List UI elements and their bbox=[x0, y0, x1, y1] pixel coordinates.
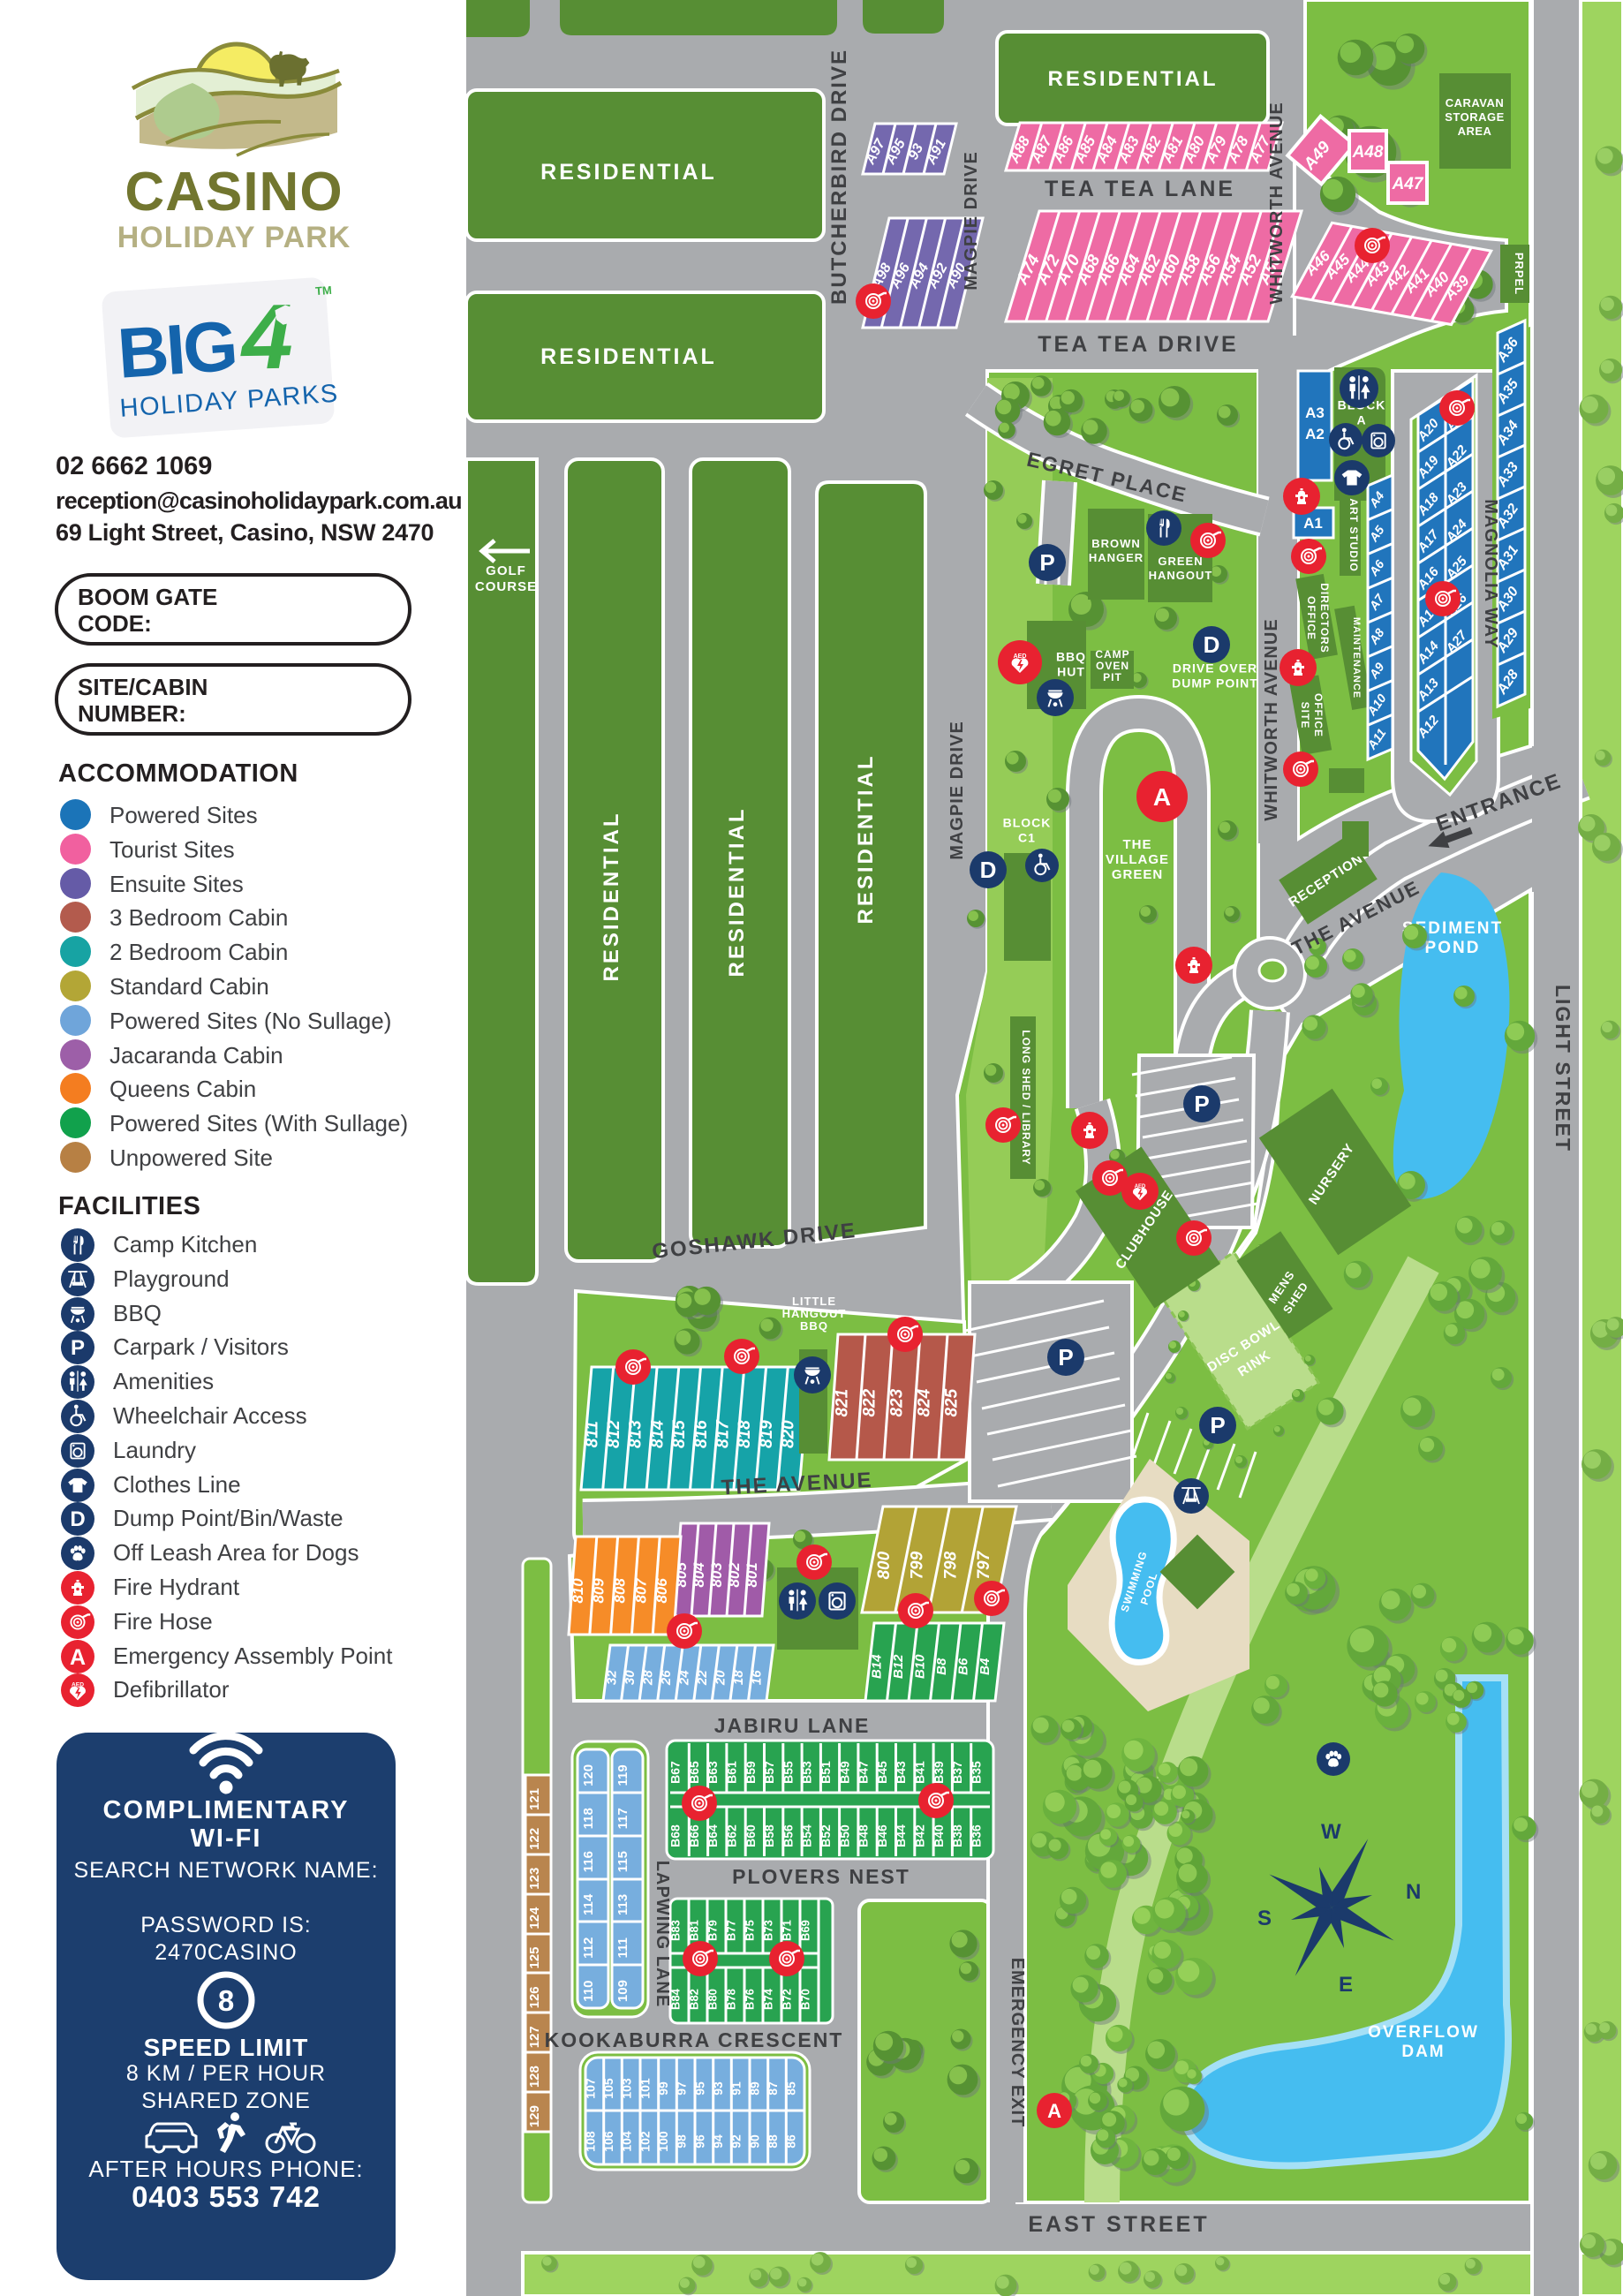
svg-text:116: 116 bbox=[581, 1851, 596, 1872]
svg-text:B14: B14 bbox=[869, 1654, 884, 1679]
svg-text:B43: B43 bbox=[894, 1761, 908, 1784]
svg-text:B62: B62 bbox=[725, 1824, 739, 1847]
svg-text:92: 92 bbox=[729, 2134, 744, 2149]
svg-text:LIGHT STREET: LIGHT STREET bbox=[1551, 985, 1574, 1152]
svg-text:DAM: DAM bbox=[1401, 2043, 1445, 2061]
svg-text:108: 108 bbox=[583, 2131, 597, 2152]
svg-text:811: 811 bbox=[583, 1421, 601, 1447]
svg-text:106: 106 bbox=[601, 2131, 615, 2152]
svg-text:102: 102 bbox=[638, 2131, 652, 2152]
svg-text:0403 553 742: 0403 553 742 bbox=[132, 2180, 321, 2213]
svg-text:126: 126 bbox=[527, 1986, 542, 2008]
svg-text:118: 118 bbox=[581, 1808, 596, 1829]
svg-text:SHARED ZONE: SHARED ZONE bbox=[141, 2088, 311, 2113]
svg-text:DIRECTORS: DIRECTORS bbox=[1318, 583, 1331, 653]
svg-text:BBQ: BBQ bbox=[1056, 650, 1086, 664]
svg-text:115: 115 bbox=[615, 1851, 630, 1872]
svg-text:128: 128 bbox=[527, 2066, 542, 2088]
svg-text:OVEN: OVEN bbox=[1096, 660, 1129, 672]
svg-text:804: 804 bbox=[691, 1562, 707, 1588]
svg-text:B37: B37 bbox=[950, 1761, 964, 1784]
svg-text:RESIDENTIAL: RESIDENTIAL bbox=[725, 806, 749, 977]
svg-text:MAGNOLIA WAY: MAGNOLIA WAY bbox=[1481, 499, 1500, 648]
svg-text:B65: B65 bbox=[687, 1761, 701, 1784]
svg-text:B70: B70 bbox=[799, 1989, 812, 2010]
svg-text:110: 110 bbox=[581, 1980, 596, 2001]
svg-text:104: 104 bbox=[620, 2131, 634, 2152]
svg-text:B40: B40 bbox=[932, 1824, 946, 1847]
svg-text:B68: B68 bbox=[668, 1824, 683, 1847]
svg-text:825: 825 bbox=[943, 1388, 962, 1416]
svg-text:88: 88 bbox=[766, 2134, 780, 2149]
svg-text:123: 123 bbox=[527, 1868, 542, 1890]
svg-text:EAST STREET: EAST STREET bbox=[1028, 2212, 1209, 2237]
svg-text:97: 97 bbox=[675, 2081, 689, 2096]
svg-text:B61: B61 bbox=[725, 1761, 739, 1784]
svg-text:B55: B55 bbox=[781, 1761, 795, 1784]
svg-text:107: 107 bbox=[583, 2078, 597, 2099]
svg-text:COMPLIMENTARY: COMPLIMENTARY bbox=[103, 1796, 350, 1824]
svg-text:WI-FI: WI-FI bbox=[191, 1824, 262, 1853]
svg-text:B8: B8 bbox=[934, 1658, 949, 1675]
svg-text:RESIDENTIAL: RESIDENTIAL bbox=[600, 811, 623, 981]
svg-text:B57: B57 bbox=[762, 1761, 776, 1784]
svg-text:24: 24 bbox=[677, 1670, 692, 1686]
svg-text:OFFICE: OFFICE bbox=[1305, 596, 1317, 640]
svg-text:813: 813 bbox=[627, 1420, 645, 1448]
svg-text:822: 822 bbox=[861, 1388, 879, 1416]
svg-text:799: 799 bbox=[909, 1551, 927, 1579]
svg-text:LONG SHED / LIBRARY: LONG SHED / LIBRARY bbox=[1020, 1030, 1032, 1165]
svg-text:30: 30 bbox=[623, 1670, 638, 1685]
svg-text:JABIRU LANE: JABIRU LANE bbox=[714, 1714, 871, 1737]
svg-text:B56: B56 bbox=[781, 1824, 795, 1847]
svg-text:MAGPIE DRIVE: MAGPIE DRIVE bbox=[947, 721, 967, 860]
svg-text:B47: B47 bbox=[857, 1761, 871, 1784]
svg-text:AFTER HOURS PHONE:: AFTER HOURS PHONE: bbox=[88, 2156, 363, 2182]
svg-text:B81: B81 bbox=[688, 1920, 701, 1941]
svg-text:B64: B64 bbox=[706, 1824, 720, 1847]
svg-text:129: 129 bbox=[527, 2105, 542, 2127]
svg-text:818: 818 bbox=[736, 1420, 754, 1448]
svg-text:D: D bbox=[70, 1507, 85, 1531]
svg-text:89: 89 bbox=[747, 2081, 761, 2096]
svg-text:801: 801 bbox=[744, 1562, 760, 1587]
svg-text:PRPEL: PRPEL bbox=[1513, 253, 1526, 295]
svg-text:B54: B54 bbox=[800, 1824, 814, 1847]
svg-text:B50: B50 bbox=[837, 1824, 851, 1847]
svg-text:91: 91 bbox=[729, 2081, 744, 2096]
svg-text:RESIDENTIAL: RESIDENTIAL bbox=[540, 344, 717, 369]
svg-text:SITE: SITE bbox=[1299, 702, 1311, 729]
svg-text:121: 121 bbox=[527, 1788, 542, 1810]
svg-text:THE: THE bbox=[1123, 837, 1152, 852]
svg-text:B49: B49 bbox=[837, 1761, 851, 1784]
svg-text:A48: A48 bbox=[1352, 143, 1384, 162]
svg-text:B82: B82 bbox=[688, 1989, 701, 2010]
svg-text:824: 824 bbox=[916, 1388, 934, 1416]
svg-text:B76: B76 bbox=[744, 1989, 757, 2010]
svg-text:800: 800 bbox=[875, 1551, 894, 1579]
svg-text:RESIDENTIAL: RESIDENTIAL bbox=[1047, 67, 1218, 91]
svg-text:819: 819 bbox=[758, 1420, 776, 1448]
svg-text:W: W bbox=[1321, 1820, 1341, 1844]
svg-text:18: 18 bbox=[731, 1670, 746, 1685]
svg-text:RESIDENTIAL: RESIDENTIAL bbox=[540, 160, 717, 185]
svg-text:2470CASINO: 2470CASINO bbox=[155, 1940, 297, 1965]
svg-text:87: 87 bbox=[766, 2081, 780, 2096]
svg-text:127: 127 bbox=[527, 2026, 542, 2048]
svg-text:WHITWORTH AVENUE: WHITWORTH AVENUE bbox=[1262, 618, 1281, 820]
svg-text:105: 105 bbox=[601, 2078, 615, 2099]
svg-text:BIG: BIG bbox=[115, 306, 238, 393]
svg-text:HANGOUT: HANGOUT bbox=[1149, 569, 1213, 582]
svg-text:806: 806 bbox=[653, 1578, 670, 1604]
svg-text:B36: B36 bbox=[969, 1824, 983, 1847]
svg-text:821: 821 bbox=[834, 1389, 852, 1417]
svg-text:803: 803 bbox=[708, 1562, 725, 1588]
svg-text:LITTLE: LITTLE bbox=[792, 1295, 836, 1308]
svg-text:B41: B41 bbox=[912, 1761, 926, 1784]
svg-text:SEARCH NETWORK NAME:: SEARCH NETWORK NAME: bbox=[73, 1858, 378, 1883]
svg-text:820: 820 bbox=[780, 1420, 798, 1448]
svg-text:119: 119 bbox=[615, 1764, 630, 1786]
svg-text:B59: B59 bbox=[744, 1761, 758, 1784]
svg-text:A: A bbox=[1153, 783, 1171, 811]
svg-text:815: 815 bbox=[670, 1420, 689, 1448]
svg-text:PIT: PIT bbox=[1103, 671, 1122, 684]
svg-text:EMERGENCY EXIT: EMERGENCY EXIT bbox=[1008, 1958, 1027, 2128]
svg-text:808: 808 bbox=[612, 1578, 629, 1604]
svg-text:A3: A3 bbox=[1305, 404, 1325, 421]
svg-text:RESIDENTIAL: RESIDENTIAL bbox=[854, 753, 878, 924]
svg-text:96: 96 bbox=[692, 2134, 706, 2149]
svg-text:HANGER: HANGER bbox=[1089, 551, 1144, 564]
svg-text:B78: B78 bbox=[725, 1989, 738, 2010]
svg-text:B52: B52 bbox=[819, 1824, 833, 1847]
svg-text:HANGOUT: HANGOUT bbox=[782, 1307, 847, 1320]
svg-text:N: N bbox=[1406, 1880, 1421, 1904]
svg-text:B39: B39 bbox=[932, 1761, 946, 1784]
svg-text:109: 109 bbox=[615, 1980, 630, 2002]
svg-text:GREEN: GREEN bbox=[1158, 555, 1203, 568]
svg-text:B79: B79 bbox=[706, 1920, 720, 1941]
svg-text:A: A bbox=[1047, 2100, 1061, 2122]
svg-text:PLOVERS NEST: PLOVERS NEST bbox=[732, 1865, 910, 1888]
svg-text:B58: B58 bbox=[762, 1824, 776, 1847]
svg-text:B35: B35 bbox=[969, 1761, 983, 1784]
svg-text:125: 125 bbox=[527, 1946, 542, 1968]
svg-text:MAGPIE DRIVE: MAGPIE DRIVE bbox=[962, 151, 981, 291]
svg-text:20: 20 bbox=[713, 1670, 728, 1686]
svg-text:117: 117 bbox=[615, 1808, 630, 1829]
svg-text:810: 810 bbox=[570, 1578, 586, 1604]
svg-text:SPEED LIMIT: SPEED LIMIT bbox=[144, 2034, 309, 2061]
svg-text:B71: B71 bbox=[781, 1920, 794, 1941]
svg-text:B66: B66 bbox=[687, 1824, 701, 1847]
svg-text:B75: B75 bbox=[744, 1920, 757, 1941]
svg-text:COURSE: COURSE bbox=[475, 579, 537, 594]
svg-text:P: P bbox=[71, 1336, 85, 1360]
svg-text:WHITWORTH AVENUE: WHITWORTH AVENUE bbox=[1267, 102, 1287, 304]
svg-text:B12: B12 bbox=[891, 1654, 906, 1679]
svg-text:CARAVAN: CARAVAN bbox=[1446, 96, 1505, 110]
svg-text:B46: B46 bbox=[875, 1824, 889, 1847]
svg-text:94: 94 bbox=[711, 2134, 725, 2149]
svg-text:D: D bbox=[980, 857, 997, 883]
svg-text:E: E bbox=[1339, 1973, 1353, 1997]
svg-text:99: 99 bbox=[656, 2081, 670, 2096]
svg-text:A47: A47 bbox=[1392, 175, 1424, 193]
svg-text:814: 814 bbox=[648, 1420, 667, 1448]
svg-text:POND: POND bbox=[1425, 939, 1481, 957]
svg-text:P: P bbox=[1194, 1091, 1209, 1117]
svg-text:DUMP POINT: DUMP POINT bbox=[1172, 676, 1258, 691]
svg-text:823: 823 bbox=[888, 1388, 907, 1416]
svg-text:802: 802 bbox=[726, 1562, 743, 1588]
svg-text:28: 28 bbox=[640, 1670, 655, 1686]
svg-text:B4: B4 bbox=[978, 1658, 993, 1675]
svg-text:HUT: HUT bbox=[1057, 665, 1085, 679]
svg-text:B74: B74 bbox=[762, 1988, 775, 2010]
svg-text:812: 812 bbox=[605, 1420, 623, 1448]
svg-text:114: 114 bbox=[581, 1893, 596, 1915]
svg-text:98: 98 bbox=[675, 2134, 689, 2149]
svg-text:86: 86 bbox=[784, 2134, 798, 2149]
svg-text:4: 4 bbox=[239, 286, 294, 389]
svg-text:P: P bbox=[1039, 549, 1054, 576]
svg-text:B51: B51 bbox=[819, 1761, 833, 1784]
svg-text:B69: B69 bbox=[799, 1920, 812, 1941]
svg-text:AREA: AREA bbox=[1458, 125, 1492, 138]
svg-text:B67: B67 bbox=[668, 1761, 683, 1784]
svg-text:MAINTENANCE: MAINTENANCE bbox=[1351, 617, 1362, 699]
svg-text:B53: B53 bbox=[800, 1761, 814, 1784]
svg-text:B80: B80 bbox=[706, 1989, 720, 2010]
svg-text:90: 90 bbox=[747, 2134, 761, 2149]
svg-text:A2: A2 bbox=[1305, 426, 1325, 442]
svg-text:C1: C1 bbox=[1018, 831, 1036, 845]
svg-text:B63: B63 bbox=[706, 1761, 720, 1784]
svg-text:BUTCHERBIRD DRIVE: BUTCHERBIRD DRIVE bbox=[827, 49, 851, 305]
svg-text:817: 817 bbox=[714, 1419, 733, 1448]
svg-text:103: 103 bbox=[620, 2078, 634, 2099]
svg-text:113: 113 bbox=[615, 1894, 630, 1915]
svg-text:816: 816 bbox=[692, 1420, 711, 1448]
svg-text:B44: B44 bbox=[894, 1824, 908, 1847]
svg-text:B72: B72 bbox=[781, 1989, 794, 2010]
svg-text:101: 101 bbox=[638, 2078, 652, 2099]
svg-text:VILLAGE: VILLAGE bbox=[1106, 852, 1169, 867]
svg-text:CAMP: CAMP bbox=[1095, 648, 1129, 661]
svg-text:809: 809 bbox=[591, 1578, 608, 1604]
svg-text:22: 22 bbox=[695, 1670, 710, 1686]
svg-text:B42: B42 bbox=[912, 1824, 926, 1847]
svg-text:797: 797 bbox=[975, 1550, 993, 1579]
svg-text:B45: B45 bbox=[875, 1761, 889, 1784]
svg-text:DRIVE OVER: DRIVE OVER bbox=[1173, 661, 1257, 676]
svg-text:GOLF: GOLF bbox=[486, 563, 526, 578]
svg-text:B10: B10 bbox=[912, 1654, 927, 1679]
svg-text:BROWN: BROWN bbox=[1091, 537, 1141, 550]
svg-text:B48: B48 bbox=[857, 1824, 871, 1847]
svg-text:112: 112 bbox=[581, 1937, 596, 1959]
svg-text:OFFICE: OFFICE bbox=[1312, 693, 1325, 737]
svg-text:8: 8 bbox=[218, 1984, 234, 2017]
svg-text:TEA TEA DRIVE: TEA TEA DRIVE bbox=[1038, 332, 1238, 357]
svg-text:798: 798 bbox=[941, 1551, 960, 1579]
svg-text:STORAGE: STORAGE bbox=[1445, 110, 1505, 124]
svg-text:S: S bbox=[1257, 1907, 1272, 1930]
svg-text:26: 26 bbox=[659, 1670, 674, 1686]
svg-text:100: 100 bbox=[656, 2131, 670, 2152]
svg-text:B6: B6 bbox=[955, 1658, 970, 1675]
svg-text:ART STUDIO: ART STUDIO bbox=[1347, 498, 1360, 571]
svg-text:B38: B38 bbox=[950, 1824, 964, 1847]
svg-text:120: 120 bbox=[581, 1764, 596, 1786]
svg-text:A1: A1 bbox=[1303, 515, 1323, 532]
svg-text:32: 32 bbox=[604, 1670, 619, 1685]
svg-text:807: 807 bbox=[632, 1577, 649, 1604]
svg-text:TM: TM bbox=[314, 283, 332, 298]
svg-text:111: 111 bbox=[615, 1937, 630, 1958]
svg-text:PASSWORD IS:: PASSWORD IS: bbox=[140, 1913, 312, 1937]
svg-text:85: 85 bbox=[784, 2081, 798, 2096]
svg-text:B73: B73 bbox=[762, 1920, 775, 1941]
svg-text:B60: B60 bbox=[744, 1824, 758, 1847]
svg-text:OVERFLOW: OVERFLOW bbox=[1368, 2023, 1479, 2042]
svg-text:A: A bbox=[70, 1645, 86, 1670]
svg-text:95: 95 bbox=[692, 2081, 706, 2096]
svg-text:BBQ: BBQ bbox=[800, 1319, 828, 1333]
svg-text:B77: B77 bbox=[725, 1920, 738, 1941]
svg-text:A: A bbox=[1356, 413, 1366, 427]
svg-text:122: 122 bbox=[527, 1828, 542, 1850]
svg-text:TEA TEA LANE: TEA TEA LANE bbox=[1045, 177, 1235, 201]
svg-text:8 KM / PER HOUR: 8 KM / PER HOUR bbox=[126, 2061, 326, 2086]
svg-text:KOOKABURRA CRESCENT: KOOKABURRA CRESCENT bbox=[545, 2028, 844, 2051]
svg-text:BLOCK: BLOCK bbox=[1003, 816, 1052, 830]
svg-text:P: P bbox=[1210, 1412, 1225, 1439]
svg-text:P: P bbox=[1058, 1344, 1073, 1371]
svg-text:16: 16 bbox=[750, 1670, 765, 1685]
svg-text:D: D bbox=[1204, 631, 1220, 658]
svg-text:124: 124 bbox=[527, 1907, 542, 1930]
svg-text:GREEN: GREEN bbox=[1112, 867, 1163, 882]
svg-text:93: 93 bbox=[711, 2081, 725, 2096]
svg-text:LAPWING LANE: LAPWING LANE bbox=[653, 1861, 672, 2007]
